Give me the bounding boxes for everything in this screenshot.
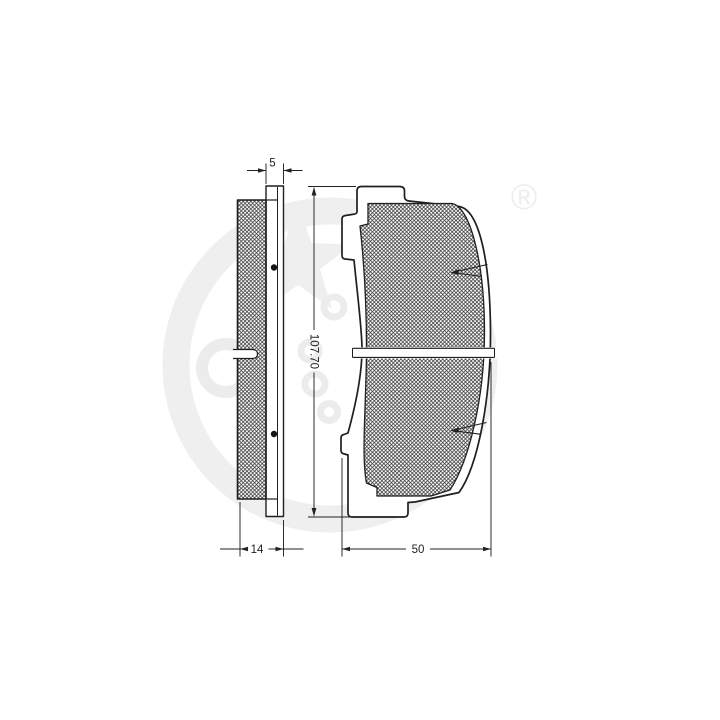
friction-slot-notch-side [233, 350, 258, 359]
watermark-ball-1 [324, 297, 344, 317]
dim-label-plate-thickness: 5 [269, 158, 275, 170]
brake-pad-side-view [233, 186, 284, 517]
rivet-dot-bottom [271, 431, 277, 437]
dim-label-total-thickness: 14 [251, 544, 264, 556]
catalog-product-image: ® [0, 0, 720, 720]
dim-label-pad-width: 50 [412, 544, 425, 556]
dim-label-pad-height: 107.70 [308, 334, 320, 369]
dimension-plate-thickness: 5 [247, 158, 303, 185]
brake-pad-front-view [341, 187, 498, 518]
technical-drawing-canvas: ® [0, 0, 720, 720]
registered-trademark-watermark: ® [511, 176, 538, 217]
rivet-dot-top [271, 264, 277, 270]
wear-slot-clearing [349, 347, 498, 358]
backplate-side [266, 186, 284, 517]
watermark-ball-3 [305, 374, 325, 394]
watermark-ball-4 [321, 404, 338, 421]
